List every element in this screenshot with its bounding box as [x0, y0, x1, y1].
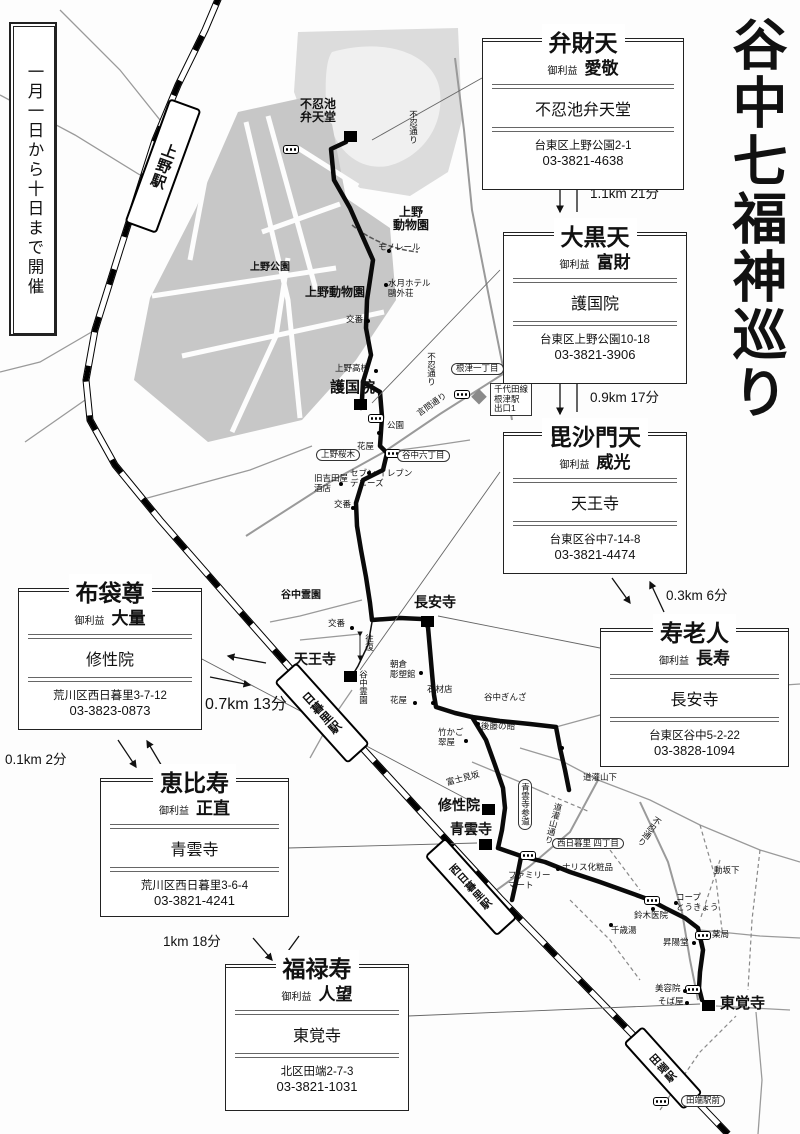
deity-title-row: 弁財天 [483, 24, 683, 58]
leg-distance: 0.7km 13分 [205, 690, 287, 714]
dokanyama-shita-label: 道灌山下 [583, 773, 617, 783]
koban-label: 交番 [346, 315, 363, 325]
benefit-value: 人望 [319, 985, 353, 1004]
coop-label: コープ とうきょう [676, 893, 719, 912]
temple-address: 荒川区西日暮里3-6-4 [101, 877, 288, 893]
dozaka-shita-label: 動坂下 [714, 866, 740, 876]
deity-name: 大黒天 [554, 218, 637, 252]
shinobazu-dori-label: 不忍通り [408, 110, 418, 144]
traffic-light-icon [454, 390, 470, 399]
benefit-label: 御利益 [282, 992, 312, 1003]
temple-phone: 03-3821-1031 [226, 1079, 408, 1094]
temple-name: 天王寺 [504, 488, 686, 516]
benefit-value: 長寿 [696, 649, 730, 668]
traffic-light-icon [283, 145, 299, 154]
yanaka-shichifukujin-map-page: 上野駅 日暮里駅 西日暮里駅 田端駅 不忍池 弁天堂 上野 動物園 モノレール … [0, 0, 800, 1134]
poi-dot [351, 506, 355, 510]
deity-name: 毘沙門天 [542, 418, 648, 452]
page-title: 谷中七福神巡り [714, 16, 794, 501]
deity-name: 恵比寿 [153, 764, 236, 798]
yakkyoku-label: 薬局 [712, 930, 729, 940]
asakura-label: 朝倉 彫塑館 [390, 660, 416, 679]
temple-address: 台東区上野公園2-1 [483, 137, 683, 153]
poi-dot [674, 901, 678, 905]
leg-distance: 0.3km 6分 [666, 584, 728, 604]
temple-address: 台東区上野公園10-18 [504, 331, 686, 347]
choanji-marker [421, 616, 434, 627]
round-trip-label: 往復 [364, 634, 374, 651]
poi-dot [384, 283, 388, 287]
leg-distance: 0.1km 2分 [5, 748, 67, 768]
temple-address: 台東区谷中7-14-8 [504, 531, 686, 547]
divider [513, 478, 677, 483]
benefit-label: 御利益 [659, 656, 689, 667]
traffic-light-icon [520, 851, 536, 860]
benefit-value: 愛敬 [585, 59, 619, 78]
temple-name: 護国院 [504, 288, 686, 316]
benefit-value: 威光 [597, 453, 631, 472]
zoo-label: 上野動物園 [305, 286, 365, 299]
period-box: 一月一日から十日まで開催 [9, 22, 57, 336]
temple-name: 長安寺 [601, 684, 788, 712]
poi-dot [367, 471, 371, 475]
chiyoda-exit-label: 千代田線 根津駅 出口1 [490, 383, 532, 416]
deity-name: 弁財天 [542, 24, 625, 58]
benefit-value: 富財 [597, 253, 631, 272]
poi-dot [609, 923, 613, 927]
poi-dot [387, 249, 391, 253]
divider [492, 127, 674, 132]
deity-box-bishamonten: 毘沙門天 御利益威光 天王寺 台東区谷中7-14-8 03-3821-4474 [503, 432, 687, 574]
deity-box-jurojin: 寿老人 御利益長寿 長安寺 台東区谷中5-2-22 03-3828-1094 [600, 628, 789, 767]
yanaka-cemetery-v-label: 谷中霊園 [358, 670, 368, 704]
yanaka-ginza-label: 谷中ぎんざ [484, 693, 527, 703]
divider [513, 278, 677, 283]
sekizai-label: 石材店 [427, 685, 453, 695]
benten-hall-marker [344, 131, 357, 142]
poi-dot [431, 701, 435, 705]
tabata-ekimae-label: 田端駅前 [681, 1095, 725, 1107]
benten-hall-label: 不忍池 弁天堂 [300, 98, 336, 125]
traffic-light-icon [685, 985, 701, 994]
deity-title-row: 恵比寿 [101, 764, 288, 798]
poi-dot [685, 1001, 689, 1005]
yanaka6-label: 谷中六丁目 [397, 450, 450, 462]
yanaka-cemetery-label: 谷中霊園 [281, 590, 321, 601]
chitose-yu-label: 千歳湯 [611, 926, 637, 936]
deity-title-row: 布袋尊 [19, 574, 201, 608]
poi-dot [350, 626, 354, 630]
divider [28, 677, 192, 682]
poi-dot [377, 431, 381, 435]
hanaya-label: 花屋 [390, 696, 407, 706]
traffic-light-icon [695, 931, 711, 940]
temple-address: 台東区谷中5-2-22 [601, 727, 788, 743]
leg-distance: 0.9km 17分 [590, 386, 659, 406]
poi-dot [683, 989, 687, 993]
divider [110, 824, 279, 829]
divider [235, 1010, 399, 1015]
poi-dot [339, 482, 343, 486]
temple-phone: 03-3821-4241 [101, 893, 288, 908]
tennoji-map-label: 天王寺 [294, 652, 336, 668]
temple-phone: 03-3821-3906 [504, 347, 686, 362]
deity-name: 福禄寿 [276, 950, 359, 984]
nezu1-label: 根津一丁目 [451, 363, 504, 375]
deity-box-benzaiten: 弁財天 御利益愛敬 不忍池弁天堂 台東区上野公園2-1 03-3821-4638 [482, 38, 684, 190]
deity-box-hoteison: 布袋尊 御利益大量 修性院 荒川区西日暮里3-7-12 03-3823-0873 [18, 588, 202, 730]
sobaya-label: そば屋 [658, 997, 684, 1007]
poi-dot [476, 722, 480, 726]
seiunji-marker [479, 839, 492, 850]
divider [513, 321, 677, 326]
poi-dot [651, 907, 655, 911]
benefit-label: 御利益 [560, 460, 590, 471]
goto-ame-label: 後藤の飴 [481, 722, 515, 732]
seiunji-map-label: 青雲寺 [450, 822, 492, 838]
hanaya-label: 花屋 [357, 442, 374, 452]
deity-title-row: 福禄寿 [226, 950, 408, 984]
deity-title-row: 寿老人 [601, 614, 788, 648]
nishinippori4-label: 西日暮里 四丁目 [552, 838, 624, 849]
divider [513, 521, 677, 526]
deity-box-ebisu: 恵比寿 御利益正直 青雲寺 荒川区西日暮里3-6-4 03-3821-4241 [100, 778, 289, 917]
temple-name: 修性院 [19, 644, 201, 672]
poi-dot [464, 739, 468, 743]
zoo-east-label: 上野 動物園 [393, 206, 429, 233]
benefit-label: 御利益 [548, 66, 578, 77]
togakuji-map-label: 東覚寺 [720, 996, 765, 1013]
temple-address: 北区田端2-7-3 [226, 1063, 408, 1079]
koban-label: 交番 [334, 500, 351, 510]
traffic-light-icon [644, 896, 660, 905]
traffic-light-icon [368, 414, 384, 423]
benefit-label: 御利益 [75, 616, 105, 627]
temple-name: 東覚寺 [226, 1020, 408, 1048]
shinobazu-dori-label: 不忍通り [426, 352, 436, 386]
temple-name: 不忍池弁天堂 [483, 94, 683, 122]
temple-phone: 03-3821-4638 [483, 153, 683, 168]
benefit-value: 正直 [196, 799, 230, 818]
seven-eleven-label: セブン-イレブン デニーズ [350, 469, 412, 488]
benefit-value: 大量 [112, 609, 146, 628]
divider [110, 867, 279, 872]
temple-phone: 03-3823-0873 [19, 703, 201, 718]
poi-dot [692, 941, 696, 945]
period-text: 一月一日から十日まで開催 [13, 26, 55, 334]
gokokuin-marker [354, 399, 367, 410]
tennoji-marker [344, 671, 357, 682]
benefit-label: 御利益 [159, 806, 189, 817]
koban-label: 交番 [328, 619, 345, 629]
temple-phone: 03-3828-1094 [601, 743, 788, 758]
deity-box-daikokuten: 大黒天 御利益富財 護国院 台東区上野公園10-18 03-3821-3906 [503, 232, 687, 384]
park-small-label: 公園 [387, 421, 404, 431]
biyoin-label: 美容院 [655, 984, 681, 994]
deity-title-row: 毘沙門天 [504, 418, 686, 452]
famima-label: ファミリー マート [508, 871, 551, 890]
gokokuin-map-label: 護国院 [330, 380, 375, 397]
temple-phone: 03-3821-4474 [504, 547, 686, 562]
deity-box-fukurokuju: 福禄寿 御利益人望 東覚寺 北区田端2-7-3 03-3821-1031 [225, 964, 409, 1111]
poi-dot [560, 746, 564, 750]
poi-dot [374, 369, 378, 373]
divider [235, 1053, 399, 1058]
poi-dot [556, 867, 560, 871]
monorail-label: モノレール [378, 243, 421, 253]
divider [610, 717, 779, 722]
suigetsu-hotel-label: 水月ホテル 鷗外荘 [388, 279, 431, 298]
traffic-light-icon [653, 1097, 669, 1106]
poi-dot [413, 701, 417, 705]
shoyodo-label: 昇陽堂 [663, 938, 689, 948]
poi-dot [419, 671, 423, 675]
sakuragi-label: 上野桜木 [316, 449, 360, 461]
divider [28, 634, 192, 639]
deity-name: 布袋尊 [69, 574, 152, 608]
ueno-park-label: 上野公園 [250, 262, 290, 273]
temple-address: 荒川区西日暮里3-7-12 [19, 687, 201, 703]
subway-exit-marker [471, 389, 487, 405]
benefit-label: 御利益 [560, 260, 590, 271]
deity-title-row: 大黒天 [504, 218, 686, 252]
divider [492, 84, 674, 89]
poi-dot [366, 319, 370, 323]
takekago-label: 竹かご 翠屋 [438, 728, 464, 747]
sando-label: 青雲寺参道 [518, 779, 532, 830]
naris-label: ナリス化粧品 [562, 863, 613, 873]
choanji-map-label: 長安寺 [414, 595, 456, 611]
leg-distance: 1km 18分 [163, 930, 221, 950]
deity-name: 寿老人 [653, 614, 736, 648]
shuseiin-marker [482, 804, 495, 815]
togakuji-marker [702, 1000, 715, 1011]
ueno-hs-label: 上野高校 [335, 364, 369, 374]
divider [610, 674, 779, 679]
shuseiin-map-label: 修性院 [438, 798, 480, 814]
temple-name: 青雲寺 [101, 834, 288, 862]
suzuki-clinic-label: 鈴木医院 [634, 911, 668, 921]
